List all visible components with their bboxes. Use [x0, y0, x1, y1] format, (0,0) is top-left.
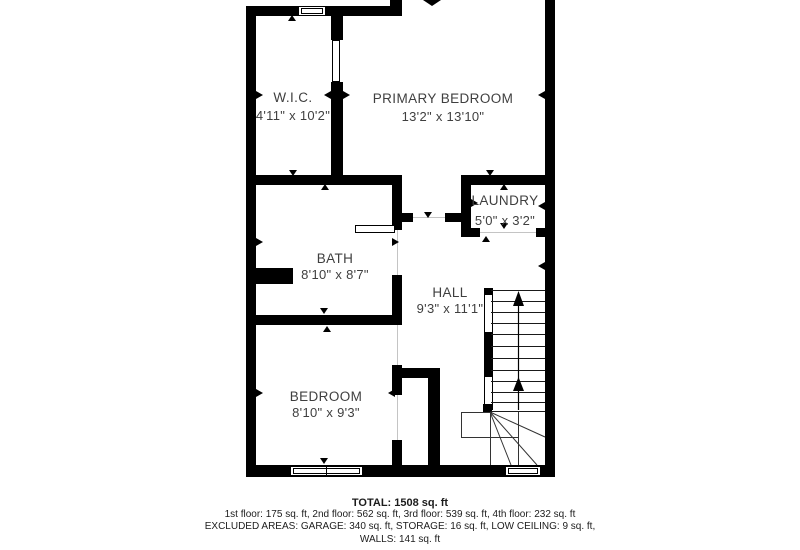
room-name: BEDROOM [290, 389, 363, 404]
room-label-wic: W.I.C. 4'11" x 10'2" [256, 90, 330, 123]
opening-lines [398, 218, 537, 441]
door-leaf-bath [356, 226, 395, 233]
room-dimensions: 8'10" x 9'3" [292, 405, 360, 420]
staircase [461, 291, 545, 466]
floors-area-line: 1st floor: 175 sq. ft, 2nd floor: 562 sq… [0, 509, 800, 521]
room-dimensions: 5'0" x 3'2" [475, 213, 535, 228]
area-summary: TOTAL: 1508 sq. ft 1st floor: 175 sq. ft… [0, 497, 800, 546]
window-symbol-bottom-right [506, 467, 541, 476]
room-label-bath: BATH 8'10" x 8'7" [301, 251, 369, 282]
room-name: PRIMARY BEDROOM [373, 91, 514, 106]
winder-steps [461, 412, 545, 465]
floor-plan-page: W.I.C. 4'11" x 10'2" PRIMARY BEDROOM 13'… [0, 0, 800, 550]
room-name: LAUNDRY [471, 193, 538, 208]
window-symbol-top [299, 7, 326, 16]
room-name: W.I.C. [273, 90, 312, 105]
room-name: BATH [317, 251, 354, 266]
floor-plan-svg: W.I.C. 4'11" x 10'2" PRIMARY BEDROOM 13'… [0, 0, 800, 550]
room-name: HALL [432, 285, 467, 300]
room-label-hall: HALL 9'3" x 11'1" [417, 285, 484, 316]
room-label-primary-bedroom: PRIMARY BEDROOM 13'2" x 13'10" [373, 91, 514, 124]
window-symbol-bottom-left [291, 466, 363, 476]
room-dimensions: 13'2" x 13'10" [402, 109, 485, 124]
room-label-bedroom: BEDROOM 8'10" x 9'3" [290, 389, 363, 420]
total-area-line: TOTAL: 1508 sq. ft [0, 497, 800, 509]
room-label-laundry: LAUNDRY 5'0" x 3'2" [471, 193, 538, 228]
room-dimensions: 4'11" x 10'2" [256, 108, 330, 123]
excluded-area-line: EXCLUDED AREAS: GARAGE: 340 sq. ft, STOR… [0, 521, 800, 533]
door-leaf-wic [333, 41, 340, 82]
walls-area-line: WALLS: 141 sq. ft [0, 534, 800, 546]
room-dimensions: 9'3" x 11'1" [417, 301, 484, 316]
room-dimensions: 8'10" x 8'7" [301, 267, 369, 282]
